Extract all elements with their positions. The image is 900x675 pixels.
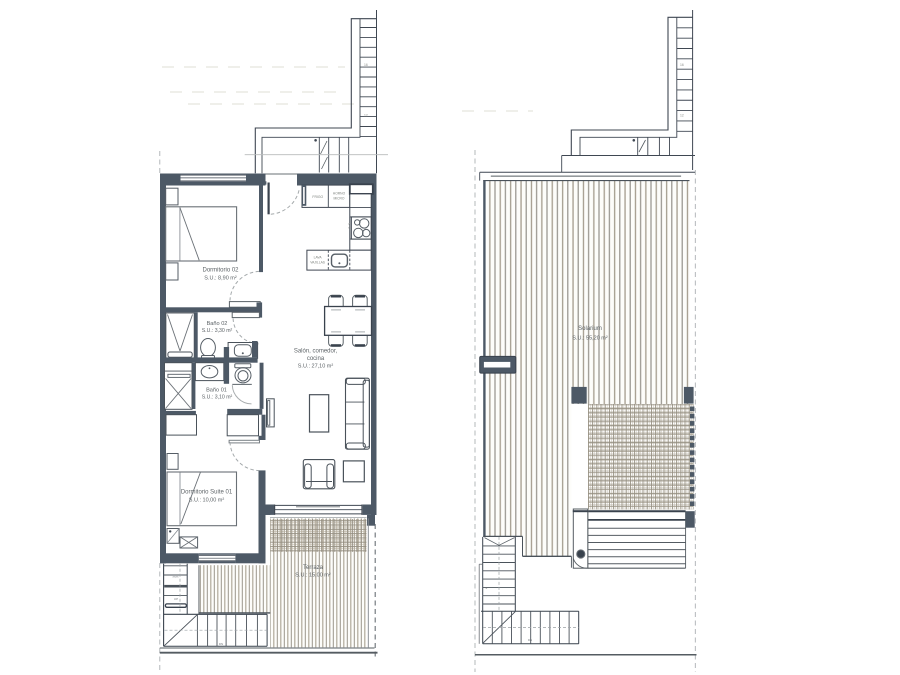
svg-text:16: 16: [364, 63, 368, 67]
svg-text:T: T: [348, 226, 350, 230]
svg-text:S.U.: 8,90 m²: S.U.: 8,90 m²: [204, 276, 237, 282]
svg-text:FRIGO: FRIGO: [312, 195, 323, 199]
svg-text:HORNO: HORNO: [333, 192, 346, 196]
svg-text:cocina: cocina: [307, 356, 325, 362]
svg-text:12: 12: [364, 114, 368, 118]
svg-text:MICRO: MICRO: [334, 197, 345, 201]
svg-text:Baño 01: Baño 01: [206, 388, 227, 394]
svg-text:+: +: [485, 587, 487, 591]
svg-text:UP: UP: [174, 597, 178, 601]
svg-text:DN: DN: [219, 642, 223, 646]
svg-text:Dormitorio 02: Dormitorio 02: [202, 268, 239, 274]
svg-text:S.U.: 3,30 m²: S.U.: 3,30 m²: [202, 328, 233, 334]
svg-text:12: 12: [680, 114, 684, 118]
svg-text:S.U.: 55,20 m²: S.U.: 55,20 m²: [572, 336, 608, 342]
svg-text:Solarium: Solarium: [578, 326, 602, 332]
svg-text:LAVA: LAVA: [314, 256, 323, 260]
svg-text:Baño 02: Baño 02: [207, 321, 228, 327]
svg-text:16: 16: [680, 63, 684, 67]
svg-text:DN: DN: [528, 638, 532, 642]
svg-text:S.U.: 3,10 m²: S.U.: 3,10 m²: [202, 395, 233, 401]
svg-text:S.U.: 27,10 m²: S.U.: 27,10 m²: [298, 364, 334, 370]
svg-text:Terraza: Terraza: [303, 565, 324, 571]
svg-text:S.U.: 15,00 m²: S.U.: 15,00 m²: [295, 573, 331, 579]
svg-text:Salón, comedor,: Salón, comedor,: [294, 349, 338, 355]
svg-text:Dormitorio Suite 01: Dormitorio Suite 01: [181, 490, 233, 496]
svg-text:S.U.: 10,00 m²: S.U.: 10,00 m²: [189, 498, 225, 504]
svg-text:xxxx: xxxx: [173, 574, 180, 578]
svg-text:VAJILLAS: VAJILLAS: [310, 261, 326, 265]
